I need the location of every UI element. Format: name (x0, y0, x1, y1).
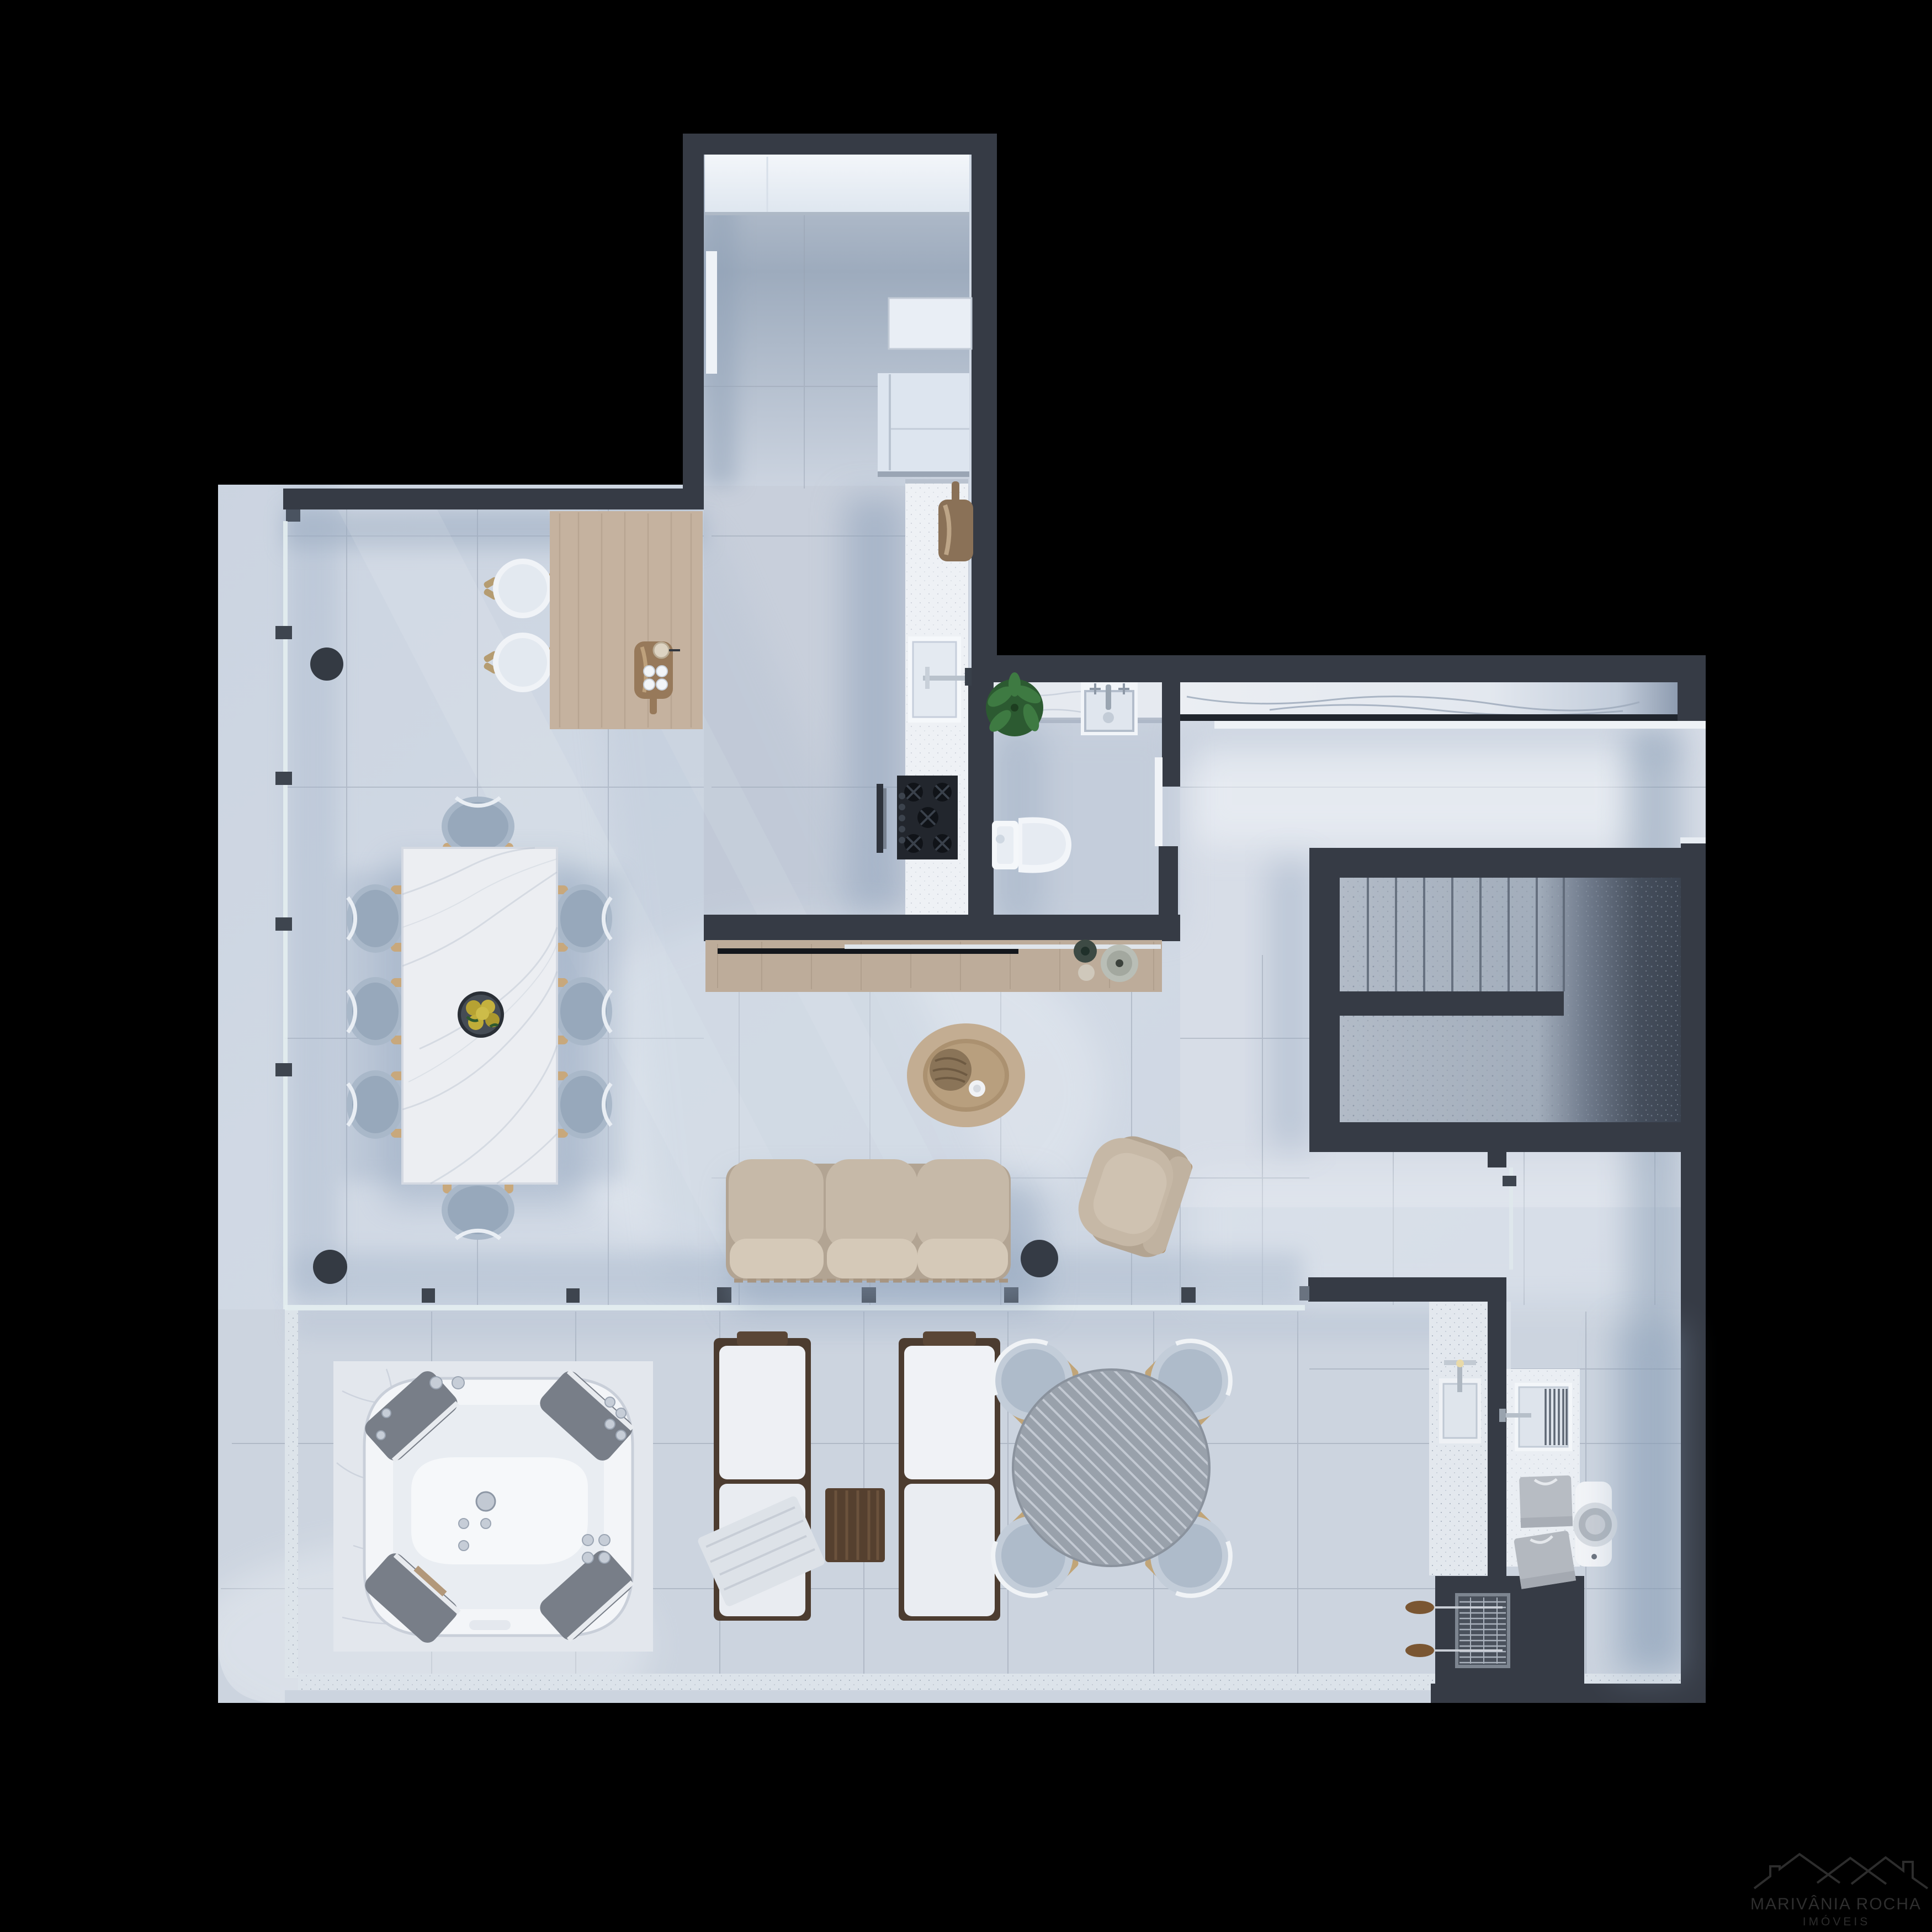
svg-text:MARIVÂNIA ROCHA: MARIVÂNIA ROCHA (1750, 1895, 1922, 1913)
svg-text:IMÓVEIS: IMÓVEIS (1803, 1915, 1871, 1928)
